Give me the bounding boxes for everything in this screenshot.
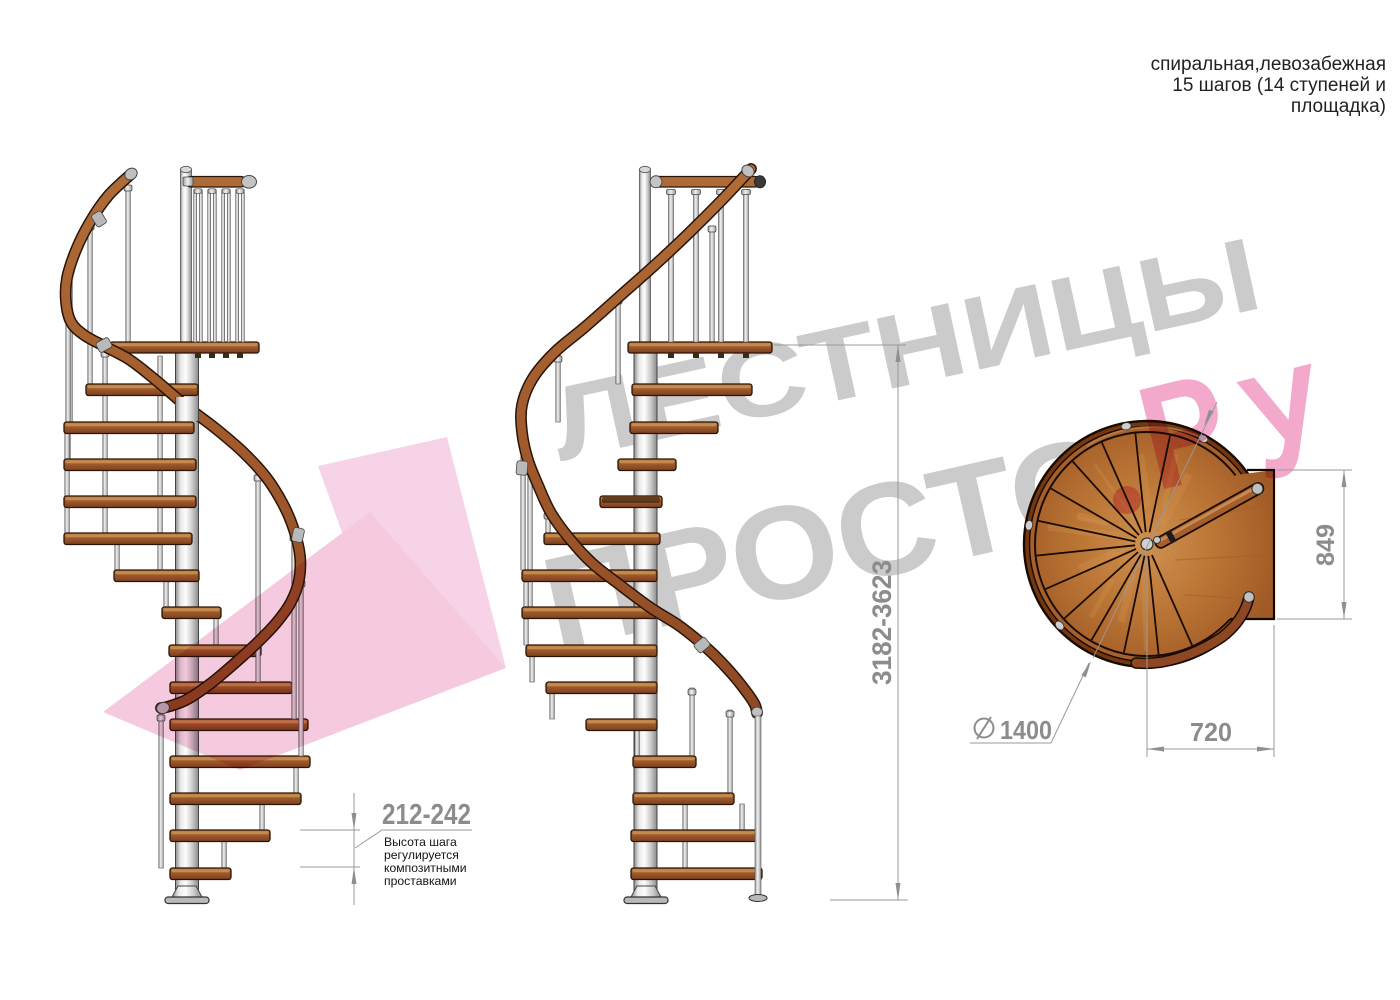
- svg-text:площадка): площадка): [1291, 96, 1386, 117]
- svg-text:Высота шага: Высота шага: [384, 835, 457, 849]
- svg-text:15 шагов (14 ступеней и: 15 шагов (14 ступеней и: [1172, 75, 1386, 96]
- svg-text:3182-3623: 3182-3623: [867, 560, 897, 685]
- svg-text:спиральная,левозабежная: спиральная,левозабежная: [1151, 54, 1386, 75]
- svg-text:регулируется: регулируется: [384, 848, 459, 862]
- svg-text:849: 849: [1312, 524, 1340, 566]
- svg-text:композитными: композитными: [384, 861, 467, 875]
- svg-text:проставками: проставками: [384, 874, 457, 888]
- svg-text:1400: 1400: [1000, 715, 1052, 745]
- svg-text:212-242: 212-242: [382, 799, 471, 831]
- svg-text:720: 720: [1190, 717, 1232, 747]
